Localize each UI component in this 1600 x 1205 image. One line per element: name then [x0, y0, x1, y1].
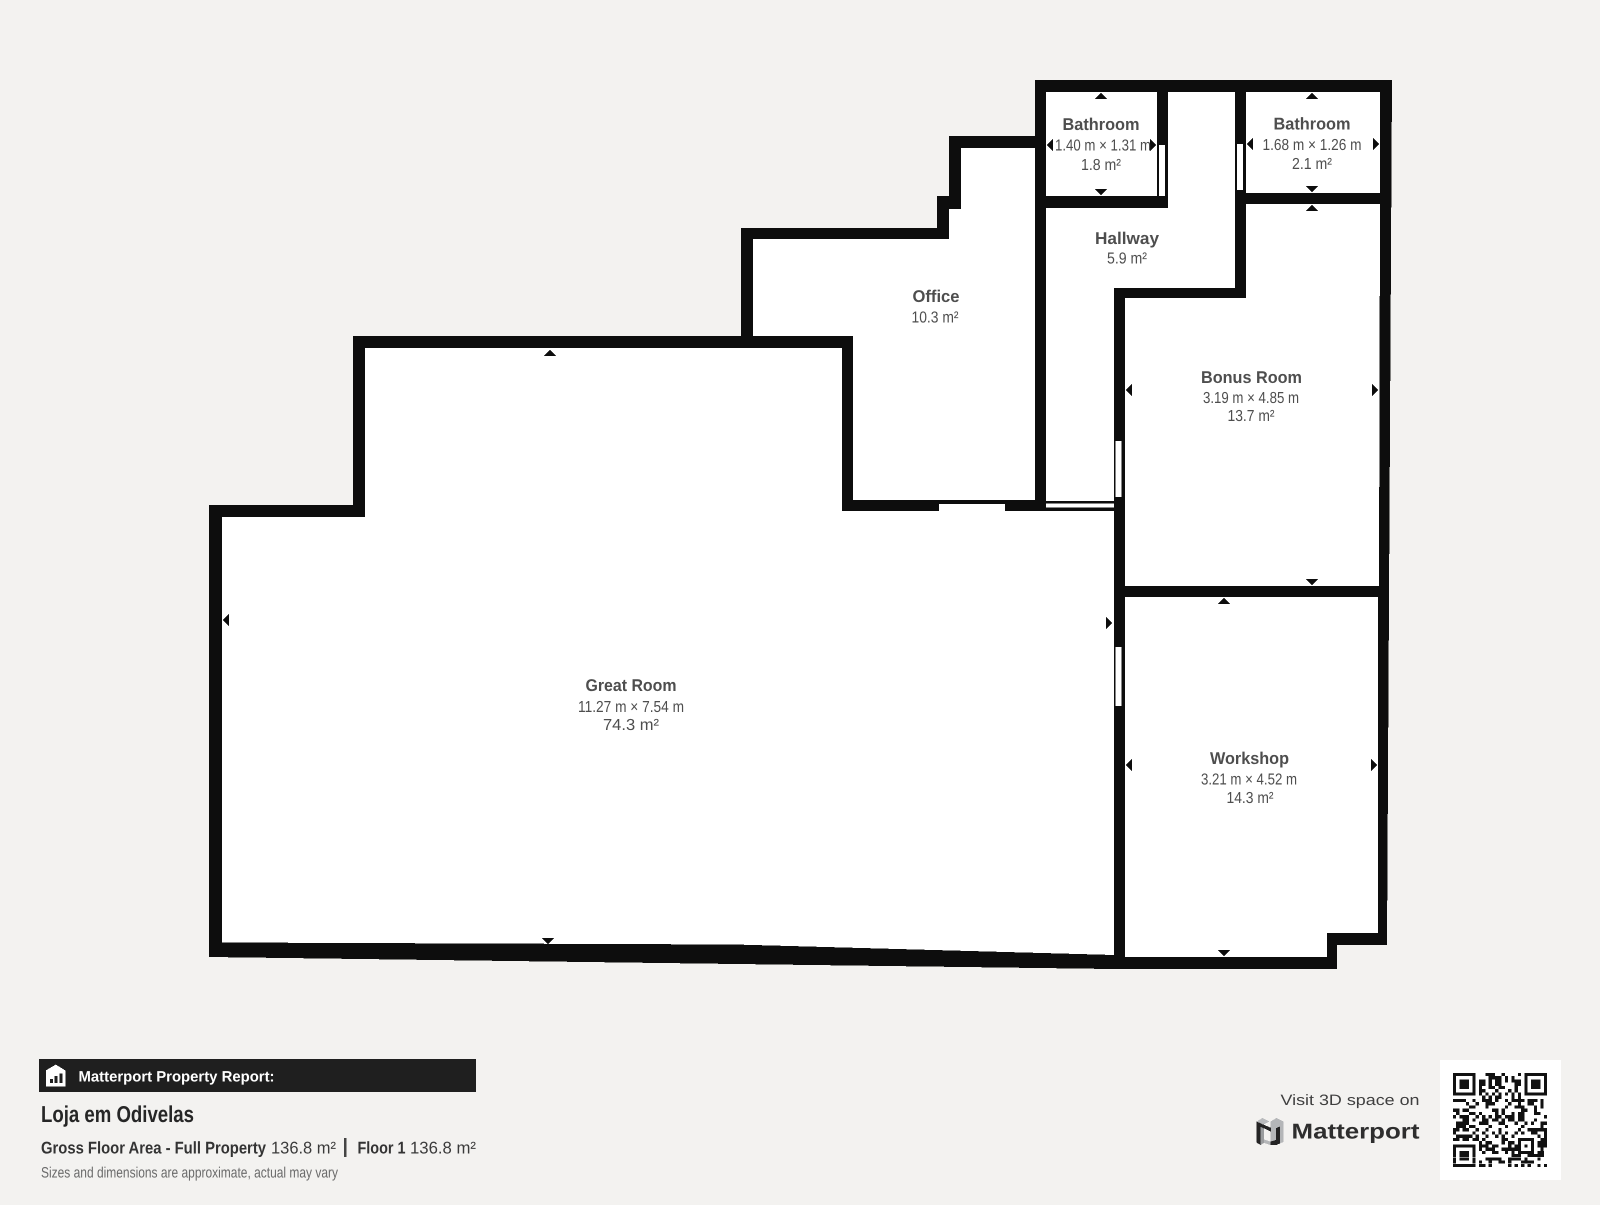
svg-text:10.3 m²: 10.3 m² — [912, 310, 960, 327]
svg-text:3.21 m × 4.52 m: 3.21 m × 4.52 m — [1201, 772, 1297, 789]
svg-text:Hallway: Hallway — [1095, 229, 1160, 248]
svg-text:Office: Office — [913, 287, 960, 306]
svg-text:14.3 m²: 14.3 m² — [1227, 790, 1275, 807]
svg-text:13.7 m²: 13.7 m² — [1228, 408, 1276, 425]
svg-text:Matterport Property Report:: Matterport Property Report: — [79, 1069, 275, 1086]
svg-text:74.3 m²: 74.3 m² — [603, 717, 660, 734]
svg-text:Loja em Odivelas: Loja em Odivelas — [41, 1101, 194, 1127]
svg-text:Bonus Room: Bonus Room — [1201, 368, 1302, 387]
svg-text:Gross Floor Area - Full Proper: Gross Floor Area - Full Property — [41, 1139, 266, 1158]
svg-text:Bathroom: Bathroom — [1063, 115, 1140, 134]
svg-text:1.40 m × 1.31 m: 1.40 m × 1.31 m — [1055, 138, 1151, 155]
svg-text:Great Room: Great Room — [586, 676, 677, 695]
svg-text:136.8 m²: 136.8 m² — [410, 1139, 476, 1158]
svg-text:2.1 m²: 2.1 m² — [1292, 156, 1333, 173]
svg-text:1.8 m²: 1.8 m² — [1081, 157, 1122, 174]
svg-text:3.19 m × 4.85 m: 3.19 m × 4.85 m — [1203, 390, 1299, 407]
svg-text:1.68 m × 1.26 m: 1.68 m × 1.26 m — [1263, 137, 1362, 154]
svg-text:Sizes and dimensions are appro: Sizes and dimensions are approximate, ac… — [41, 1165, 338, 1182]
svg-text:Workshop: Workshop — [1210, 749, 1289, 768]
svg-text:Floor 1: Floor 1 — [358, 1139, 406, 1158]
svg-text:Visit 3D space on: Visit 3D space on — [1281, 1092, 1420, 1109]
svg-text:Bathroom: Bathroom — [1274, 115, 1351, 134]
svg-text:11.27 m × 7.54 m: 11.27 m × 7.54 m — [578, 699, 684, 716]
svg-text:Matterport: Matterport — [1292, 1120, 1420, 1144]
svg-text:136.8 m²: 136.8 m² — [271, 1139, 336, 1158]
svg-text:5.9 m²: 5.9 m² — [1107, 251, 1148, 268]
